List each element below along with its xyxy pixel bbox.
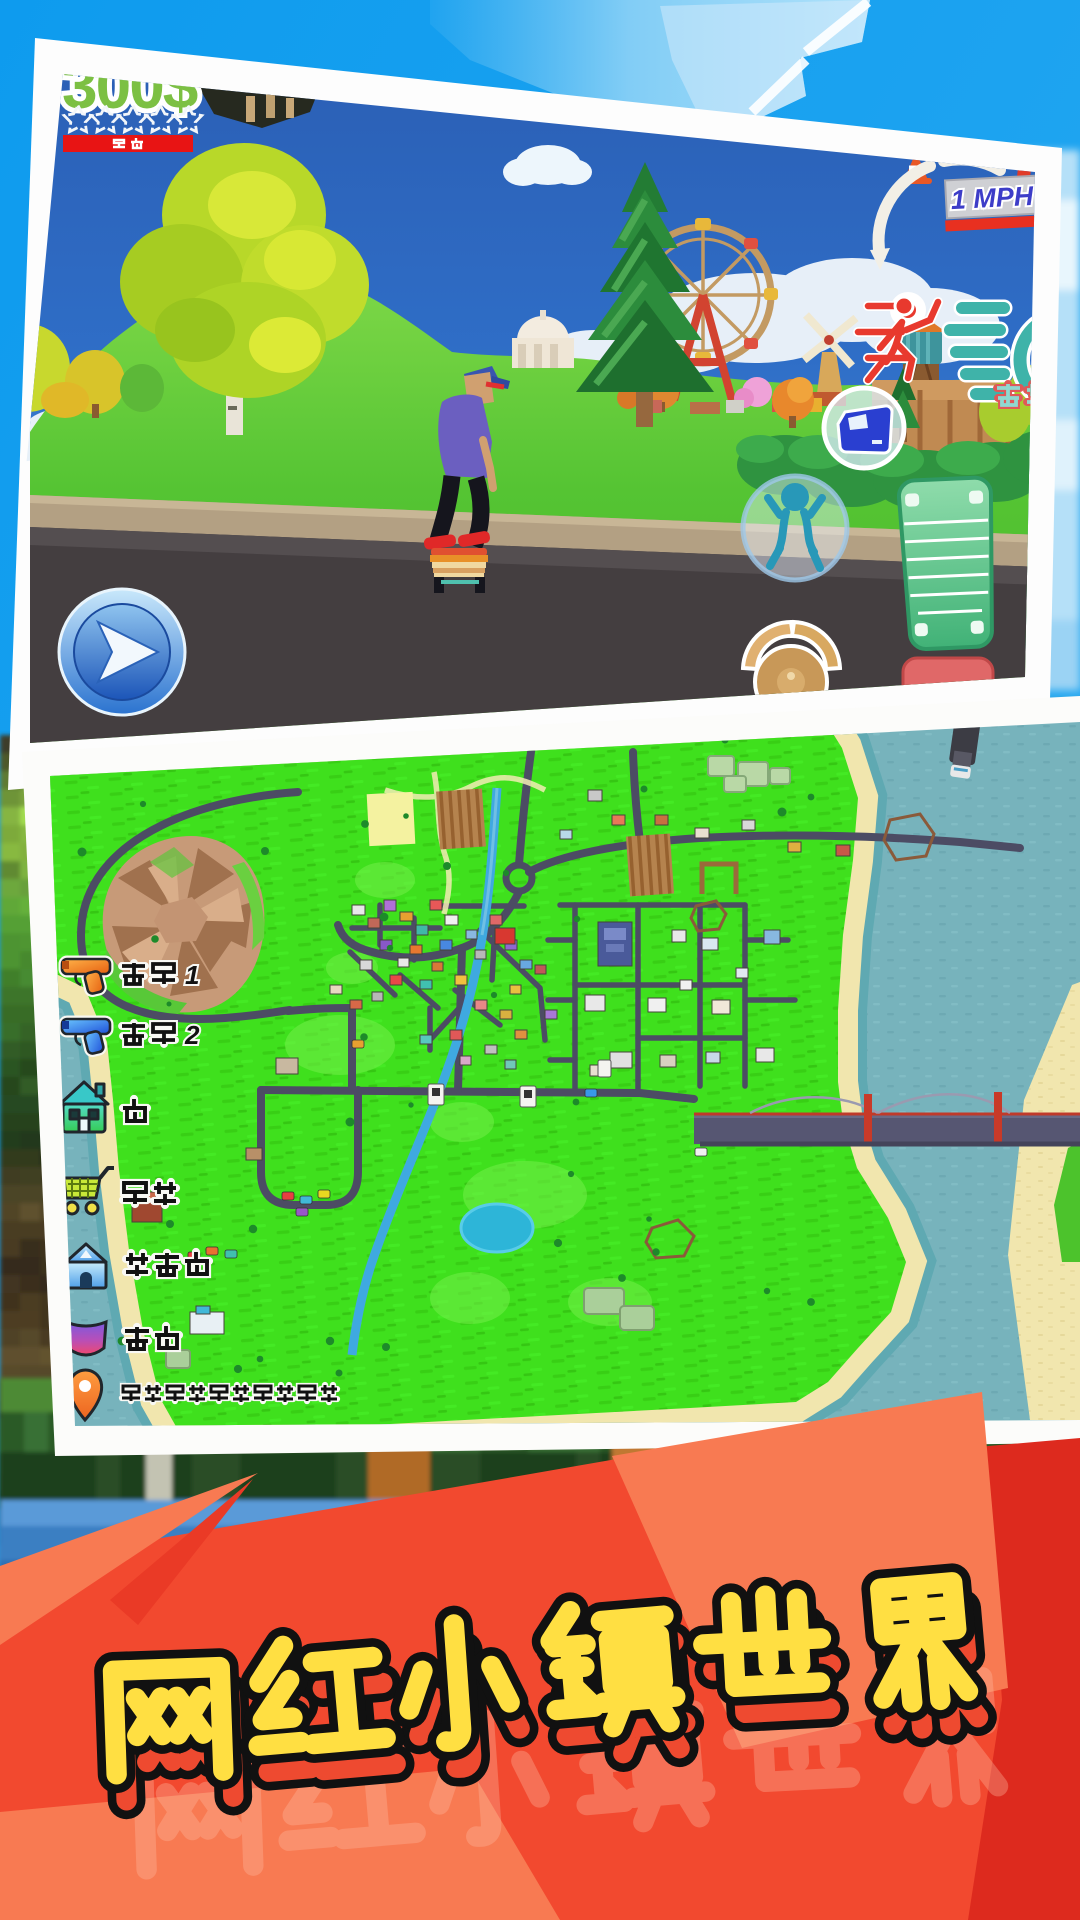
svg-text:1: 1 xyxy=(185,960,199,990)
svg-text:2: 2 xyxy=(184,1020,200,1050)
svg-text:1 MPH: 1 MPH xyxy=(950,181,1034,215)
